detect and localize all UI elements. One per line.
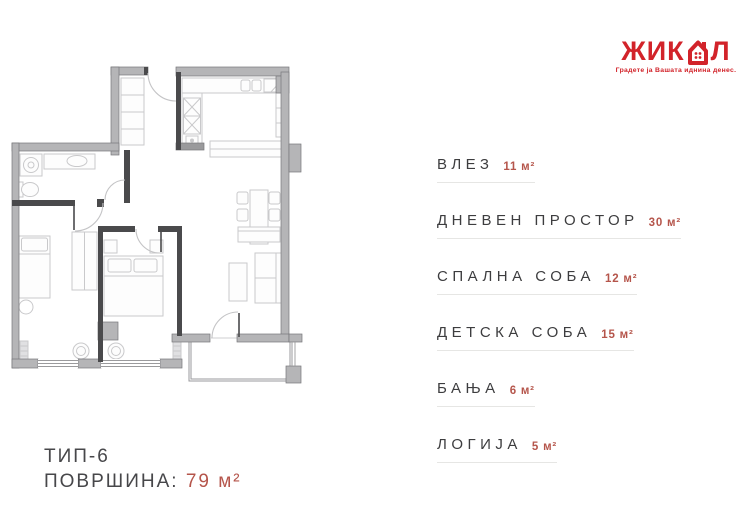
plan-type: ТИП-6 <box>44 446 242 468</box>
logo: ЖИК Л Градете ја Вашата иднина денес. <box>608 38 744 74</box>
legend-row-entry: ВЛЕЗ11 м² <box>437 156 535 183</box>
toilet <box>16 182 39 197</box>
legend-row-living: ДНЕВЕН ПРОСТОР30 м² <box>437 212 681 239</box>
wardrobe <box>72 232 97 290</box>
room-area: 15 м² <box>601 329 633 341</box>
brochure-page: ЖИК Л Градете ја Вашата иднина денес. ВЛ… <box>0 0 750 530</box>
room-label: ДЕТСКА СОБА <box>437 324 591 341</box>
area-value: 79 м² <box>186 471 242 492</box>
legend-row-kidsroom: ДЕТСКА СОБА15 м² <box>437 324 634 351</box>
floor-plan <box>0 0 320 410</box>
logo-house-icon <box>686 39 710 65</box>
room-label: БАЊА <box>437 380 500 397</box>
stool <box>108 343 124 359</box>
single-bed <box>19 236 50 314</box>
room-area: 6 м² <box>510 385 535 397</box>
room-area: 5 м² <box>532 441 557 453</box>
logo-text-end: Л <box>711 38 731 65</box>
kitchen-counters <box>182 78 288 148</box>
room-label: ЛОГИЈА <box>437 436 522 453</box>
washing-machine <box>20 154 42 176</box>
legend-row-bedroom: СПАЛНА СОБА12 м² <box>437 268 637 295</box>
room-area: 30 м² <box>649 217 681 229</box>
interior-walls <box>12 67 182 362</box>
sofa-set <box>229 227 283 303</box>
room-label: СПАЛНА СОБА <box>437 268 595 285</box>
logo-text-start: ЖИК <box>621 38 684 65</box>
furniture <box>16 78 288 360</box>
bath-sink <box>44 154 95 169</box>
logo-tagline: Градете ја Вашата иднина денес. <box>608 67 744 74</box>
legend-row-bathroom: БАЊА6 м² <box>437 380 535 407</box>
room-label: ДНЕВЕН ПРОСТОР <box>437 212 639 229</box>
double-bed <box>104 240 163 316</box>
entry-closet <box>121 78 144 145</box>
room-legend: ВЛЕЗ11 м² ДНЕВЕН ПРОСТОР30 м² СПАЛНА СОБ… <box>437 156 681 492</box>
room-area: 12 м² <box>605 273 637 285</box>
stool <box>73 343 89 359</box>
room-area: 11 м² <box>503 161 535 173</box>
plan-total-area: ПОВРШИНА: 79 м² <box>44 471 242 493</box>
loggia <box>189 338 292 381</box>
room-label: ВЛЕЗ <box>437 156 493 173</box>
kitchen-island <box>210 141 288 157</box>
plan-summary: ТИП-6 ПОВРШИНА: 79 м² <box>44 446 242 493</box>
legend-row-loggia: ЛОГИЈА5 м² <box>437 436 557 463</box>
area-label: ПОВРШИНА: <box>44 471 179 492</box>
